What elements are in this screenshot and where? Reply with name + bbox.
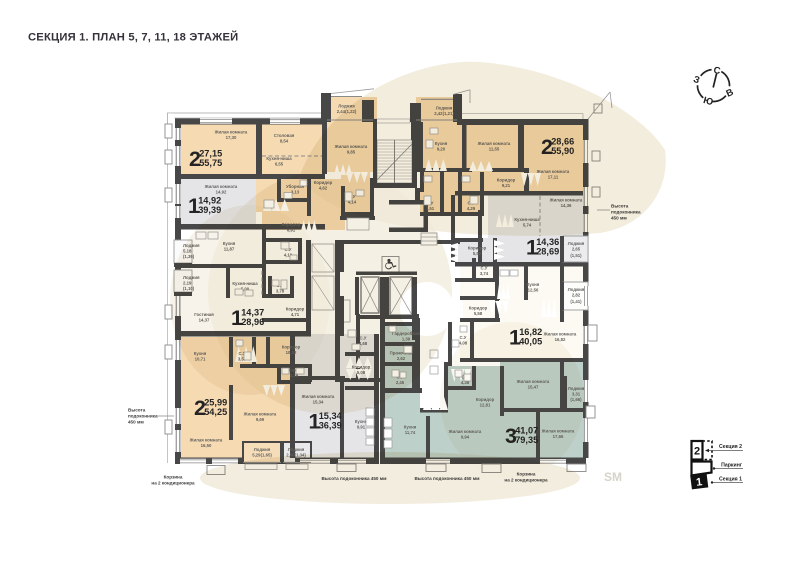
svg-text:Столовая: Столовая [274,133,295,138]
svg-text:Секция 1: Секция 1 [719,477,742,483]
svg-text:12,56: 12,56 [528,288,539,293]
svg-text:11,74: 11,74 [405,430,416,435]
svg-text:Коридор: Коридор [469,306,488,311]
svg-text:55,75: 55,75 [199,158,222,168]
svg-text:25,99: 25,99 [204,397,227,407]
svg-text:Высота: Высота [128,408,146,413]
svg-text:3,74: 3,74 [480,271,489,276]
svg-text:9,91: 9,91 [357,425,366,430]
svg-text:28,69: 28,69 [536,247,559,257]
svg-text:2,65: 2,65 [572,247,581,252]
svg-text:Жилая комната: Жилая комната [204,184,238,189]
svg-text:Корзина: Корзина [164,475,183,480]
svg-text:на 2 кондиционера: на 2 кондиционера [151,481,195,486]
svg-text:Кухня: Кухня [404,425,417,430]
svg-text:SM: SM [604,470,622,484]
svg-text:2,82: 2,82 [572,293,581,298]
svg-text:Жилая комната: Жилая комната [189,438,223,443]
svg-text:2: 2 [694,446,700,458]
svg-text:(1,41): (1,41) [570,299,582,304]
svg-text:27,15: 27,15 [199,148,222,158]
svg-text:Паркинг: Паркинг [721,463,743,469]
svg-text:Лоджия: Лоджия [568,241,585,246]
svg-text:Лоджия: Лоджия [288,447,305,452]
svg-text:9,69: 9,69 [256,417,265,422]
svg-text:450 мм: 450 мм [128,420,144,425]
svg-text:54,25: 54,25 [204,407,227,417]
svg-text:14,36: 14,36 [536,237,559,247]
svg-text:С.У: С.У [460,335,467,340]
svg-text:36,39: 36,39 [319,421,342,431]
svg-text:Кухня-ниша: Кухня-ниша [266,156,292,161]
svg-text:СЕКЦИЯ 1. ПЛАН 5, 7, 11, 18 ЭТ: СЕКЦИЯ 1. ПЛАН 5, 7, 11, 18 ЭТАЖЕЙ [28,31,238,44]
svg-text:Кухня: Кухня [527,282,540,287]
svg-text:14,92: 14,92 [216,190,227,195]
svg-text:Секция 2: Секция 2 [719,444,742,450]
svg-text:17,30: 17,30 [226,135,237,140]
svg-text:5,52: 5,52 [473,251,482,256]
svg-text:5,58: 5,58 [474,311,483,316]
svg-text:5,29(1,65): 5,29(1,65) [252,453,272,458]
svg-text:8,54: 8,54 [280,139,289,144]
svg-text:14,92: 14,92 [198,195,221,205]
svg-text:Лоджия: Лоджия [254,447,271,452]
svg-text:Лоджия: Лоджия [568,287,585,292]
svg-text:(1,51): (1,51) [570,253,582,258]
svg-text:Жилая комната: Жилая комната [243,412,277,417]
svg-text:Коридор: Коридор [468,246,487,251]
svg-text:подоконника: подоконника [128,414,158,419]
svg-text:16,50: 16,50 [201,443,212,448]
svg-text:6,55: 6,55 [275,162,284,167]
svg-text:Жилая комната: Жилая комната [214,130,248,135]
svg-text:С.У: С.У [481,266,488,271]
